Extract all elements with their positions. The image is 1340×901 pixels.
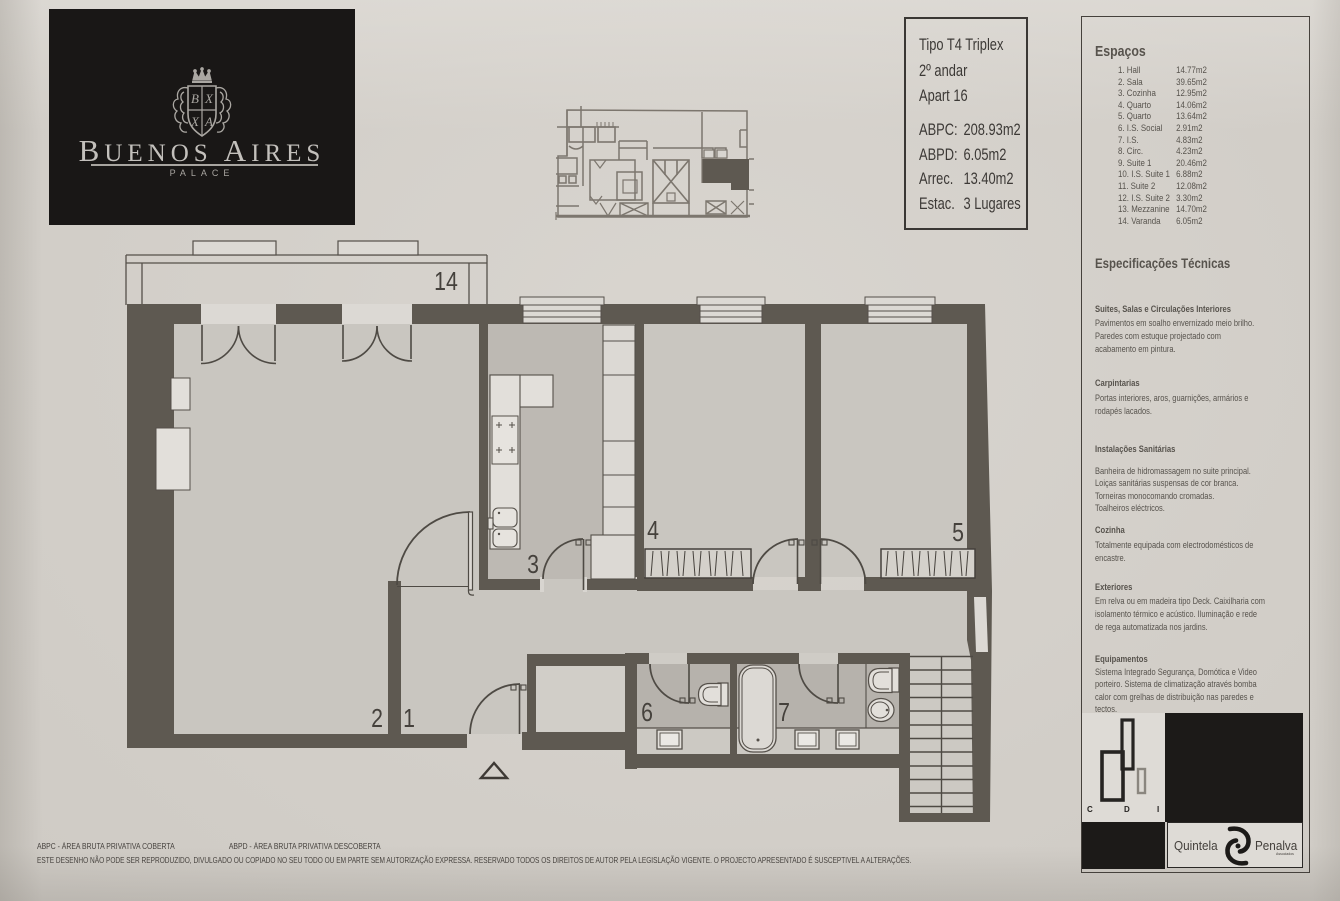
svg-text:5: 5	[952, 518, 964, 548]
svg-text:4: 4	[647, 516, 659, 546]
svg-text:14: 14	[434, 267, 458, 297]
svg-text:6: 6	[641, 698, 653, 728]
svg-text:7: 7	[778, 698, 790, 728]
svg-text:3: 3	[527, 550, 539, 580]
svg-text:1: 1	[403, 704, 415, 734]
svg-text:2: 2	[371, 704, 383, 734]
